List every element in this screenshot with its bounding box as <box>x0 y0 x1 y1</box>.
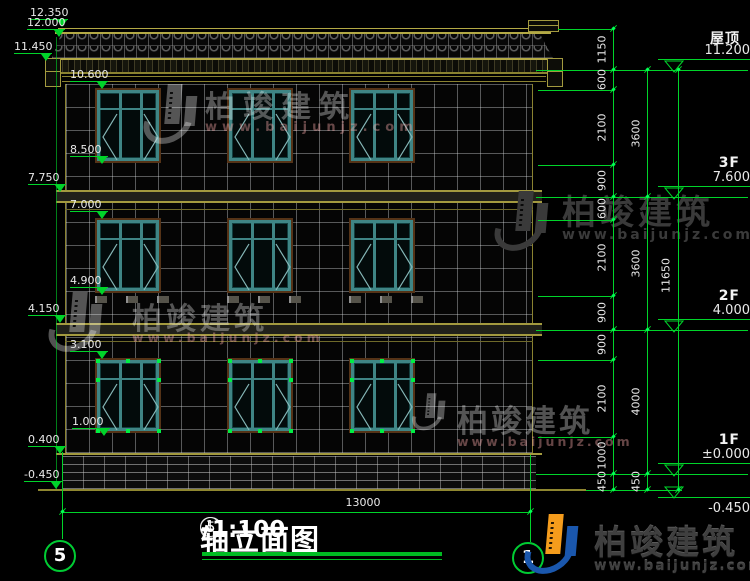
brand-logo-icon <box>145 82 203 146</box>
cad-grip-dots <box>350 359 354 363</box>
level-arrow-icon <box>41 54 51 61</box>
dim-label: 600 <box>596 56 609 104</box>
level-arrow-icon <box>55 185 65 192</box>
level-arrow-icon <box>97 82 107 89</box>
level-marker: 4.900 <box>70 274 136 296</box>
level-marker: 10.600 <box>70 68 136 90</box>
overall-width-label: 13000 <box>320 496 406 509</box>
roof-ridge-line-2 <box>55 32 551 34</box>
fascia-end-cap-left <box>45 58 61 87</box>
elevation-drawing-canvas: 12.350 12.000 11.450 10.600 8.500 7.750 … <box>0 0 750 581</box>
title-scale: 1:100 <box>212 517 285 543</box>
dim-label: 3600 <box>630 240 643 288</box>
dim-label: 450 <box>596 458 609 506</box>
dim-label: 2100 <box>596 104 609 152</box>
casement-lines <box>354 382 416 432</box>
level-triangle-icon <box>664 60 684 73</box>
window-sill-blocks <box>349 296 423 303</box>
floor-level-marker: 1F ±0.000 <box>658 432 750 476</box>
level-marker: 11.450 <box>14 40 80 62</box>
brand-logo: 柏竣建筑 www.baijunjz.com <box>526 512 750 578</box>
dim-label: 2100 <box>596 375 609 423</box>
fascia-end-cap-right <box>547 58 563 87</box>
level-arrow-icon <box>97 212 107 219</box>
roof-ridge-line <box>58 28 548 29</box>
level-arrow-icon <box>97 157 107 164</box>
level-marker: 4.150 <box>28 302 94 324</box>
bottom-dimension-line <box>62 512 530 513</box>
dimension-chain-line <box>678 70 679 490</box>
level-arrow-icon <box>55 316 65 323</box>
window <box>351 360 413 431</box>
level-marker: 7.750 <box>28 171 94 193</box>
window <box>229 360 291 431</box>
level-triangle-icon <box>664 464 684 477</box>
ground-line <box>38 489 586 491</box>
brand-logo-icon <box>496 189 554 253</box>
level-marker: 12.000 <box>27 16 93 38</box>
level-arrow-icon <box>51 482 61 489</box>
dim-label: 3600 <box>630 110 643 158</box>
level-marker: 7.000 <box>70 198 136 220</box>
left-leader-line <box>56 37 57 489</box>
brand-logo-icon <box>413 392 449 432</box>
level-triangle-icon <box>664 187 684 200</box>
level-arrow-icon <box>99 429 109 436</box>
window <box>351 220 413 291</box>
window-transom <box>100 363 156 380</box>
level-marker: -0.450 <box>24 468 90 490</box>
window-transom <box>232 223 288 240</box>
level-arrow-icon <box>54 30 64 37</box>
floor-level-marker: 2F 4.000 <box>658 288 750 332</box>
brand-logo-icon <box>526 512 584 576</box>
level-arrow-icon <box>97 288 107 295</box>
window-transom <box>354 363 410 380</box>
level-triangle-icon <box>664 320 684 333</box>
dimension-chain-line <box>647 70 648 490</box>
title-underline-thick <box>202 552 442 556</box>
level-marker: 8.500 <box>70 143 136 165</box>
dimension-chain-line <box>613 29 614 490</box>
floor-level-marker: 屋顶 11.200 <box>658 28 750 72</box>
dim-label: 900 <box>596 321 609 369</box>
title-underline-thin <box>202 559 442 560</box>
drawing-title: 5–1轴立面图1:100 <box>200 517 460 553</box>
axis-line <box>62 452 63 539</box>
dim-label: 450 <box>630 458 643 506</box>
roof-tile-band <box>52 34 553 58</box>
floor-level-marker: 3F 7.600 <box>658 155 750 199</box>
window <box>229 220 291 291</box>
watermark: 柏竣建筑 www.baijunjz.com <box>413 392 653 452</box>
watermark: 柏竣建筑 www.baijunjz.com <box>145 82 475 152</box>
window-transom <box>100 223 156 240</box>
level-marker: 3.100 <box>70 338 136 360</box>
dim-label: 4000 <box>630 378 643 426</box>
level-arrow-icon <box>55 447 65 454</box>
casement-lines <box>232 242 294 292</box>
level-arrow-icon <box>97 352 107 359</box>
dim-label: 600 <box>596 185 609 233</box>
plinth-cap <box>56 453 542 455</box>
window-transom <box>354 223 410 240</box>
casement-lines <box>232 382 294 432</box>
roof-ridge-end-cap <box>528 20 559 32</box>
casement-lines <box>354 242 416 292</box>
cad-grip-dots <box>228 359 232 363</box>
dim-label: 2100 <box>596 234 609 282</box>
level-marker: 0.400 <box>28 433 94 455</box>
brick-plinth <box>62 456 536 489</box>
window-transom <box>232 363 288 380</box>
axis-bubble-5: 5 <box>44 540 76 572</box>
